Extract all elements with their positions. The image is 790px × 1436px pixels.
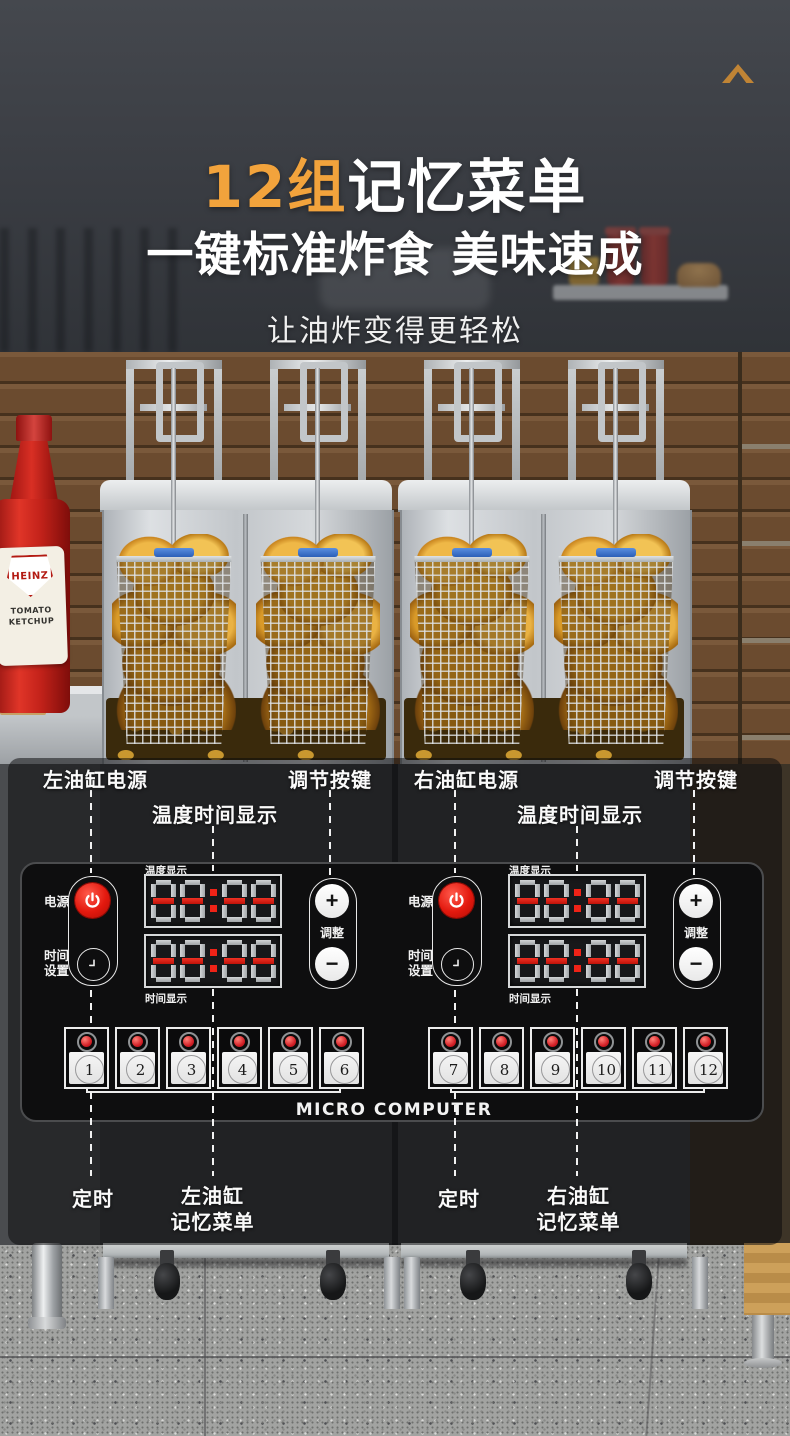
memory-button-6[interactable]: 6 [324, 1052, 359, 1084]
memory-button-4[interactable]: 4 [222, 1052, 257, 1084]
seven-segment-digit [586, 880, 611, 922]
adjust-label: 调整 [309, 926, 355, 941]
page-title: 12组记忆菜单 [0, 140, 790, 224]
callout-dashed-line [212, 989, 214, 1176]
temperature-display [508, 874, 646, 928]
memory-button-cell: 1 [64, 1027, 109, 1089]
wood-cabinet-base [744, 1243, 790, 1315]
seven-segment-digit [222, 880, 247, 922]
fryer-right [398, 352, 690, 764]
time-display [144, 934, 282, 988]
indicator-led [128, 1032, 148, 1052]
memory-button-cell: 6 [319, 1027, 364, 1089]
basket-mesh [552, 556, 680, 744]
display-colon [573, 880, 582, 922]
power-button[interactable] [439, 883, 474, 918]
basket-mesh [110, 556, 238, 744]
callout-right-tank-power: 右油缸电源 [414, 764, 519, 793]
power-icon [447, 891, 466, 910]
seven-segment-digit [180, 880, 205, 922]
basket-mesh [254, 556, 382, 744]
panel-right-tank: 电源 时间设置 温度显示 [386, 864, 758, 1120]
bottle-neck [10, 441, 58, 501]
callout-right-memory-menu: 右油缸记忆菜单 [526, 1183, 631, 1235]
indicator-led [492, 1032, 512, 1052]
shelf-column [742, 352, 790, 764]
bottle-cap [16, 415, 52, 441]
time-set-button[interactable] [441, 948, 474, 981]
seven-segment-digit [251, 940, 276, 982]
memory-button-cell: 4 [217, 1027, 262, 1089]
time-set-label: 时间设置 [408, 948, 433, 978]
basket-handle-clip [154, 548, 194, 557]
fry-basket [550, 530, 682, 746]
caster-wheel [318, 1250, 348, 1302]
memory-button-cell: 7 [428, 1027, 473, 1089]
power-label: 电源 [408, 894, 433, 909]
callout-right-temp-time-display: 温度时间显示 [517, 799, 643, 828]
seven-segment-digit [544, 880, 569, 922]
callout-left-tank-power: 左油缸电源 [43, 764, 148, 793]
memory-button-cell: 9 [530, 1027, 575, 1089]
indicator-led [230, 1032, 250, 1052]
time-display [508, 934, 646, 988]
callout-left-temp-time-display: 温度时间显示 [152, 799, 278, 828]
panel-left-tank: 电源 时间设置 温度显示 [22, 864, 394, 1120]
fryer-leg [98, 1257, 114, 1309]
fryer-leg [692, 1257, 708, 1309]
memory-button-cell: 8 [479, 1027, 524, 1089]
lift-rod [613, 368, 618, 548]
memory-button-8[interactable]: 8 [484, 1052, 519, 1084]
memory-button-cell: 5 [268, 1027, 313, 1089]
callout-dashed-line [576, 826, 578, 871]
display-colon [209, 880, 218, 922]
page-tagline: 让油炸变得更轻松 [0, 306, 790, 350]
memory-button-1[interactable]: 1 [69, 1052, 104, 1084]
title-highlight: 12组 [203, 153, 348, 221]
cabinet-foot-base [744, 1358, 782, 1368]
seven-segment-digit [151, 940, 176, 982]
display-group: 温度显示 时间显示 [144, 864, 282, 1004]
seven-segment-digit [151, 880, 176, 922]
tray [553, 285, 728, 300]
lift-rod [315, 368, 320, 548]
display-colon [209, 940, 218, 982]
lift-rod [171, 368, 176, 548]
power-label: 电源 [44, 894, 69, 909]
indicator-led [594, 1032, 614, 1052]
callout-left-timer: 定时 [72, 1183, 114, 1212]
memory-button-cell: 3 [166, 1027, 211, 1089]
callout-dashed-line [454, 790, 456, 873]
seven-segment-digit [615, 940, 640, 982]
indicator-led [332, 1032, 352, 1052]
power-button[interactable] [75, 883, 110, 918]
callout-dashed-line [212, 826, 214, 871]
indicator-led [441, 1032, 461, 1052]
callout-dashed-line [90, 790, 92, 873]
caster-wheel [458, 1250, 488, 1302]
seven-segment-digit [586, 940, 611, 982]
table-leg [32, 1243, 62, 1329]
tile-line [0, 1356, 790, 1358]
callout-right-timer: 定时 [438, 1183, 480, 1212]
brand-mark: HEINZ [6, 554, 53, 598]
indicator-led [281, 1032, 301, 1052]
panel-brand-text: MICRO COMPUTER [22, 1100, 766, 1120]
time-display-label: 时间显示 [145, 991, 187, 1006]
increase-button[interactable]: + [315, 884, 349, 918]
fryer-lid [100, 480, 392, 512]
power-icon [83, 891, 102, 910]
callout-dashed-line [693, 790, 695, 875]
callout-dashed-line [454, 1092, 456, 1176]
memory-button-cell: 2 [115, 1027, 160, 1089]
memory-button-cell: 12 [683, 1027, 728, 1089]
callout-right-adjust-keys: 调节按键 [654, 764, 738, 793]
ketchup-bottle: HEINZ TOMATO KETCHUP [0, 415, 70, 727]
basket-handle-clip [596, 548, 636, 557]
seven-segment-digit [515, 940, 540, 982]
callout-left-adjust-keys: 调节按键 [288, 764, 372, 793]
caster-wheel [624, 1250, 654, 1302]
memory-button-7[interactable]: 7 [433, 1052, 468, 1084]
fryer-left [100, 352, 392, 764]
fry-basket [108, 530, 240, 746]
time-set-button[interactable] [77, 948, 110, 981]
display-colon [573, 940, 582, 982]
indicator-led [645, 1032, 665, 1052]
tile-line [204, 1245, 206, 1436]
decrease-button[interactable]: − [679, 947, 713, 981]
decrease-button[interactable]: − [315, 947, 349, 981]
memory-button-11[interactable]: 11 [637, 1052, 672, 1084]
fryer-lid [398, 480, 690, 512]
adjust-label: 调整 [673, 926, 719, 941]
callout-left-memory-menu: 左油缸记忆菜单 [160, 1183, 265, 1235]
indicator-led [543, 1032, 563, 1052]
page-subtitle: 一键标准炸食 美味速成 [0, 216, 790, 285]
memory-button-9[interactable]: 9 [535, 1052, 570, 1084]
seven-segment-digit [544, 940, 569, 982]
basket-handle-clip [298, 548, 338, 557]
indicator-led [179, 1032, 199, 1052]
memory-button-cell: 11 [632, 1027, 677, 1089]
clock-icon [450, 957, 466, 973]
display-group: 温度显示 时间显示 [508, 864, 646, 1004]
memory-button-3[interactable]: 3 [171, 1052, 206, 1084]
seven-segment-digit [251, 880, 276, 922]
callout-dashed-line [576, 989, 578, 1176]
time-display-label: 时间显示 [509, 991, 551, 1006]
callout-dashed-line [90, 1092, 92, 1176]
indicator-led [77, 1032, 97, 1052]
fry-basket [252, 530, 384, 746]
memory-button-12[interactable]: 12 [688, 1052, 723, 1084]
increase-button[interactable]: + [679, 884, 713, 918]
fryer-leg [404, 1257, 420, 1309]
memory-button-cell: 10 [581, 1027, 626, 1089]
label-text: TOMATO KETCHUP [2, 604, 61, 628]
memory-button-10[interactable]: 10 [586, 1052, 621, 1084]
indicator-led [696, 1032, 716, 1052]
basket-handle-clip [452, 548, 492, 557]
seven-segment-digit [180, 940, 205, 982]
fry-basket [406, 530, 538, 746]
bottle-label: HEINZ TOMATO KETCHUP [0, 546, 68, 666]
seven-segment-digit [222, 940, 247, 982]
title-rest: 记忆菜单 [347, 153, 587, 221]
control-panel: 电源 时间设置 温度显示 [20, 862, 764, 1122]
product-page: 12组记忆菜单 一键标准炸食 美味速成 让油炸变得更轻松 [0, 0, 790, 1436]
fryer-leg [384, 1257, 400, 1309]
clock-icon [86, 957, 102, 973]
time-set-label: 时间设置 [44, 948, 69, 978]
basket-mesh [408, 556, 536, 744]
temperature-display [144, 874, 282, 928]
cabinet-foot [752, 1315, 774, 1361]
seven-segment-digit [515, 880, 540, 922]
seven-segment-digit [615, 880, 640, 922]
callout-dashed-line [329, 790, 331, 875]
callout-dashed-line [90, 990, 92, 1023]
memory-button-5[interactable]: 5 [273, 1052, 308, 1084]
lift-rod [469, 368, 474, 548]
caster-wheel [152, 1250, 182, 1302]
memory-button-2[interactable]: 2 [120, 1052, 155, 1084]
callout-dashed-line [454, 990, 456, 1023]
